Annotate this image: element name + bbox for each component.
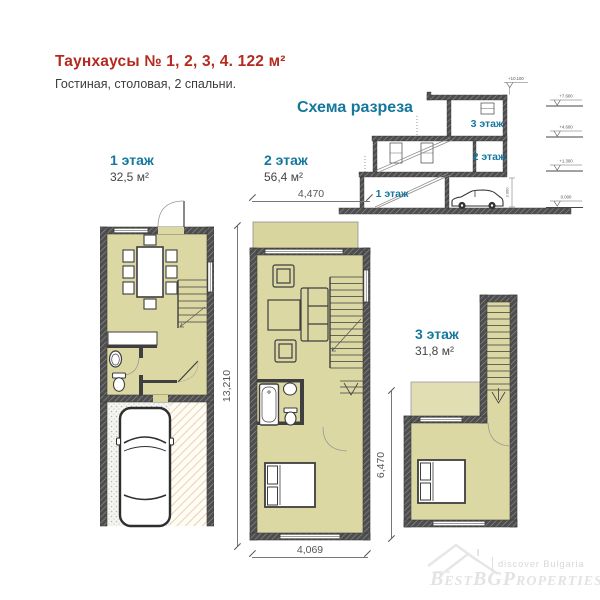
entry-door (158, 201, 184, 234)
plan-floor3-drawing (402, 292, 520, 537)
section-window-mullions (390, 109, 494, 154)
elevation-mark-0: 0.000 (546, 195, 583, 208)
svg-text:3.000: 3.000 (505, 187, 510, 198)
balcony (253, 222, 358, 249)
dim-plan3-height: 6,470 (383, 391, 392, 538)
elevation-mark-top: +10.100 (504, 76, 528, 95)
ground-line (339, 208, 571, 214)
svg-text:+1.300: +1.300 (559, 159, 573, 164)
car-side-icon (452, 190, 503, 209)
section-height-dim: 3.000 (505, 178, 516, 207)
floor2-label: 2 этаж (264, 152, 308, 168)
dim-line (252, 201, 370, 202)
floor2-area: 56,4 м² (264, 170, 308, 184)
section-floor1-label: 1 этаж (376, 188, 409, 200)
kitchen-counter (108, 332, 157, 345)
garage-hatch-area (170, 402, 207, 526)
floorplan-sheet: Таунхаусы № 1, 2, 3, 4. 122 м² Гостиная,… (0, 0, 600, 600)
elevation-mark-3: +1.300 (546, 159, 583, 172)
svg-text:+7.600: +7.600 (559, 94, 573, 99)
bathtub (260, 384, 279, 425)
watermark-brand: BestBGProperties (430, 568, 600, 591)
plan-floor2-drawing (248, 218, 372, 544)
floor1-area: 32,5 м² (110, 170, 154, 184)
dim-label: 4,470 (252, 188, 370, 200)
double-bed (418, 460, 465, 503)
elevation-mark-1: +7.600 (546, 94, 583, 107)
section-floor2-label: 2 этаж (473, 151, 506, 163)
plan-floor1-drawing (100, 195, 214, 547)
floor1-label: 1 этаж (110, 152, 154, 168)
svg-text:+4.600: +4.600 (559, 125, 573, 130)
dining-table (137, 247, 163, 297)
elevation-mark-2: +4.600 (546, 125, 583, 138)
section-scheme-drawing: 1 этаж 2 этаж 3 этаж +10.100 +7.600 +4.6… (335, 70, 597, 218)
page-title: Таунхаусы № 1, 2, 3, 4. 122 м² (55, 53, 286, 71)
terrace (411, 382, 480, 417)
svg-text:0.000: 0.000 (561, 195, 572, 200)
floor1-label-block: 1 этаж 32,5 м² (110, 152, 154, 184)
dim-line (252, 557, 368, 558)
page-subtitle: Гостиная, столовая, 2 спальни. (55, 77, 236, 91)
dim-plan2-height: 13,210 (229, 226, 238, 546)
dim-label: 6,470 (375, 435, 387, 495)
svg-text:+10.100: +10.100 (508, 76, 524, 81)
dim-line (237, 226, 238, 546)
stair-shaft-floor (487, 299, 511, 425)
dim-line (391, 391, 392, 538)
garage-doorway (153, 395, 168, 402)
car-top-icon (117, 408, 174, 526)
sink (284, 383, 297, 395)
sink (110, 351, 122, 367)
dim-plan2-top-width: 4,470 (252, 188, 370, 202)
toilet (113, 373, 126, 391)
double-bed (265, 463, 315, 507)
dim-label: 13,210 (221, 356, 233, 416)
dim-plan2-bottom-width: 4,069 (252, 544, 368, 558)
section-floor3-label: 3 этаж (471, 118, 504, 130)
floor2-label-block: 2 этаж 56,4 м² (264, 152, 308, 184)
toilet (284, 408, 297, 425)
dim-label: 4,069 (252, 544, 368, 556)
